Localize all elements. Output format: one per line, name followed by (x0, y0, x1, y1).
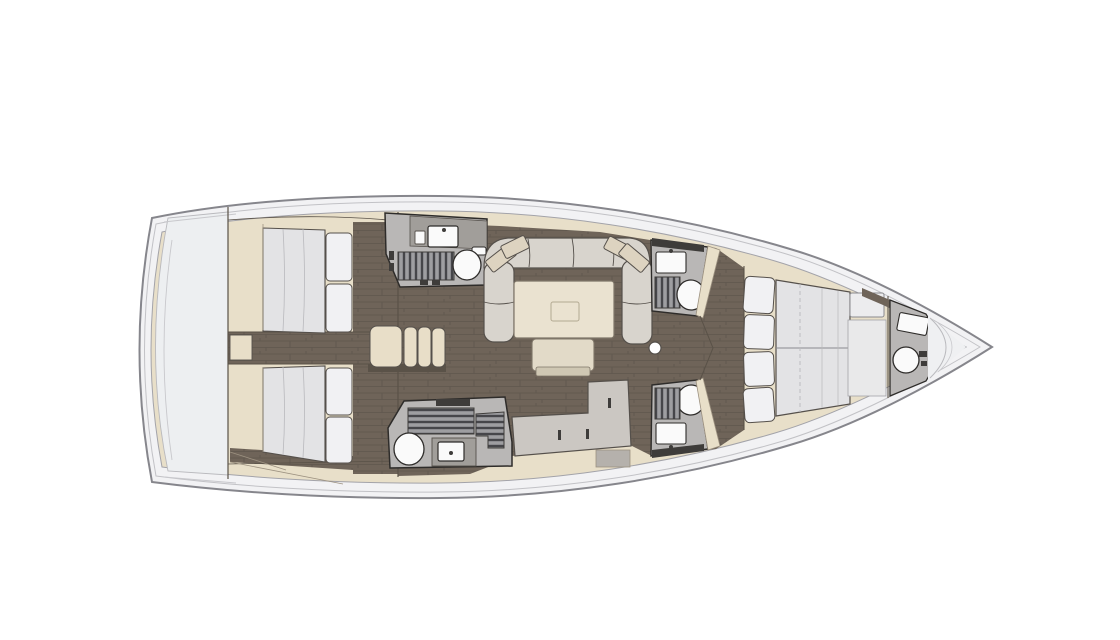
stern-platform-deck (156, 212, 229, 475)
threshold-mark (420, 280, 428, 285)
shower-grate-icon (408, 408, 474, 434)
salon-table (514, 281, 614, 338)
step-tread (404, 327, 417, 367)
sink-icon (656, 423, 686, 444)
head-aft-starboard (388, 397, 512, 468)
drawer-pull (558, 430, 561, 440)
drawer-pull (586, 429, 589, 439)
shower-grate-icon (655, 388, 680, 419)
wall-fixture (919, 351, 927, 357)
wall-fixture (921, 361, 927, 366)
salon-bench (532, 339, 594, 371)
header-cabinet (436, 399, 470, 406)
divider-cabinet (230, 335, 252, 360)
threshold-mark (432, 280, 440, 285)
pillow (743, 276, 775, 314)
pillow (326, 417, 352, 463)
toilet-icon (893, 347, 919, 373)
mast-post-icon (649, 342, 661, 354)
pillow (743, 351, 774, 386)
step-tread (370, 326, 402, 367)
drawer-pull (608, 398, 611, 408)
shower-grate-icon (398, 252, 454, 280)
toilet-icon (453, 250, 481, 280)
faucet-icon (449, 451, 453, 455)
shower-grate-icon (655, 277, 680, 308)
pillow (326, 233, 352, 281)
yacht-floorplan: Sailing yacht interior layout floor plan… (0, 0, 1120, 640)
bed-mattress (263, 366, 325, 462)
head-aft-port (385, 213, 487, 287)
soap-tray (415, 231, 425, 244)
sofa-left-seat (484, 262, 514, 342)
fwd-cabin-panel (848, 320, 886, 396)
galley-front-panel (596, 450, 630, 467)
step-tread (418, 327, 431, 367)
step-tread (432, 328, 445, 367)
pillow (743, 387, 775, 423)
wall-fixture (389, 251, 394, 260)
pillow (326, 368, 352, 415)
aft-cabin-port (263, 224, 352, 333)
yacht-floorplan-page: Sailing yacht interior layout floor plan… (0, 0, 1120, 640)
pillow (326, 284, 352, 332)
sink-icon (656, 252, 686, 273)
bench-base (536, 367, 590, 376)
stern-platform (156, 212, 237, 483)
bed-mattress (263, 228, 325, 333)
faucet-icon (442, 228, 446, 232)
companionway-steps (368, 326, 446, 372)
sofa-right-seat (622, 260, 652, 344)
wall-fixture (389, 263, 394, 271)
aft-cabin-starboard (263, 366, 352, 463)
faucet-icon (669, 249, 673, 253)
toilet-icon (394, 433, 424, 465)
pillow (743, 314, 774, 349)
faucet-icon (669, 445, 673, 449)
